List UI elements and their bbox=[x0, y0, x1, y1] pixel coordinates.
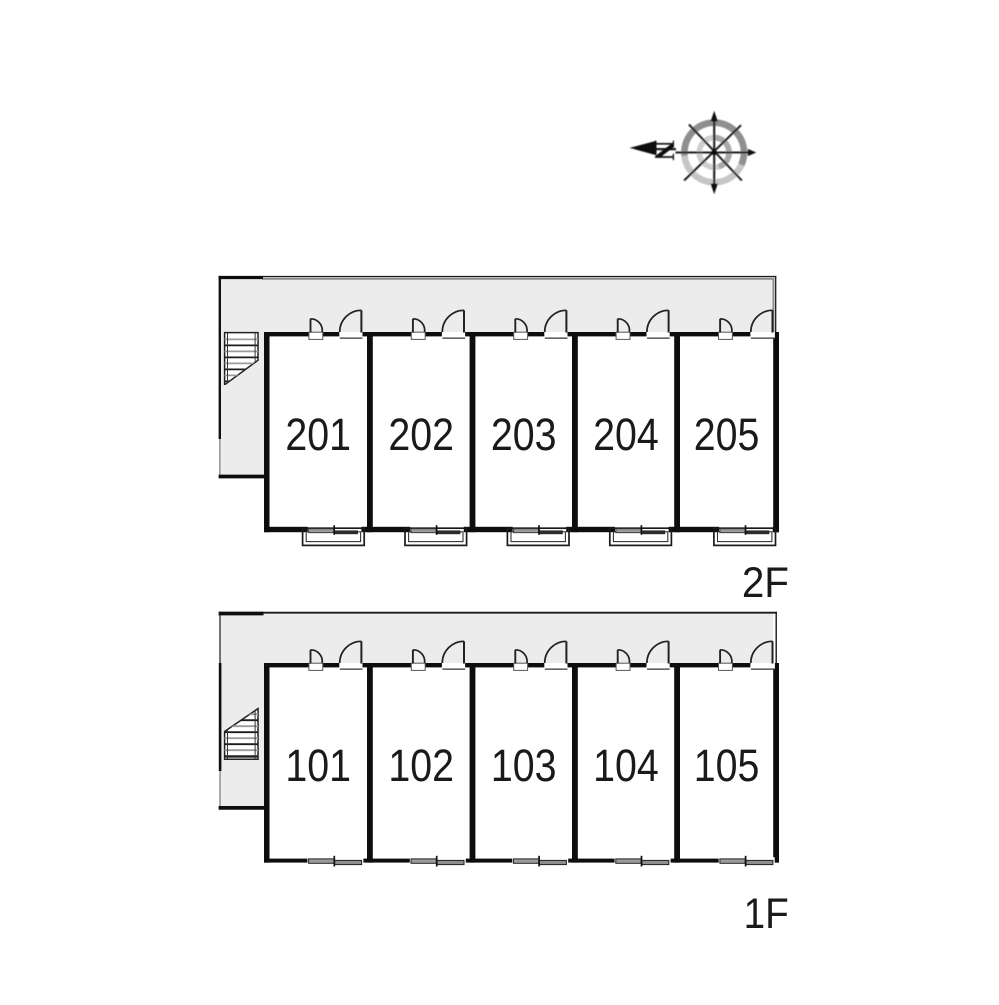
svg-text:204: 204 bbox=[593, 409, 659, 460]
svg-text:104: 104 bbox=[593, 740, 659, 791]
svg-text:2F: 2F bbox=[742, 558, 789, 606]
svg-text:202: 202 bbox=[388, 409, 454, 460]
svg-text:1F: 1F bbox=[744, 889, 789, 937]
svg-text:105: 105 bbox=[694, 740, 760, 791]
svg-text:102: 102 bbox=[388, 740, 454, 791]
svg-text:205: 205 bbox=[694, 409, 760, 460]
svg-text:103: 103 bbox=[491, 740, 557, 791]
svg-text:203: 203 bbox=[491, 409, 557, 460]
svg-text:N: N bbox=[648, 140, 679, 161]
svg-text:101: 101 bbox=[285, 740, 351, 791]
svg-text:201: 201 bbox=[285, 409, 351, 460]
